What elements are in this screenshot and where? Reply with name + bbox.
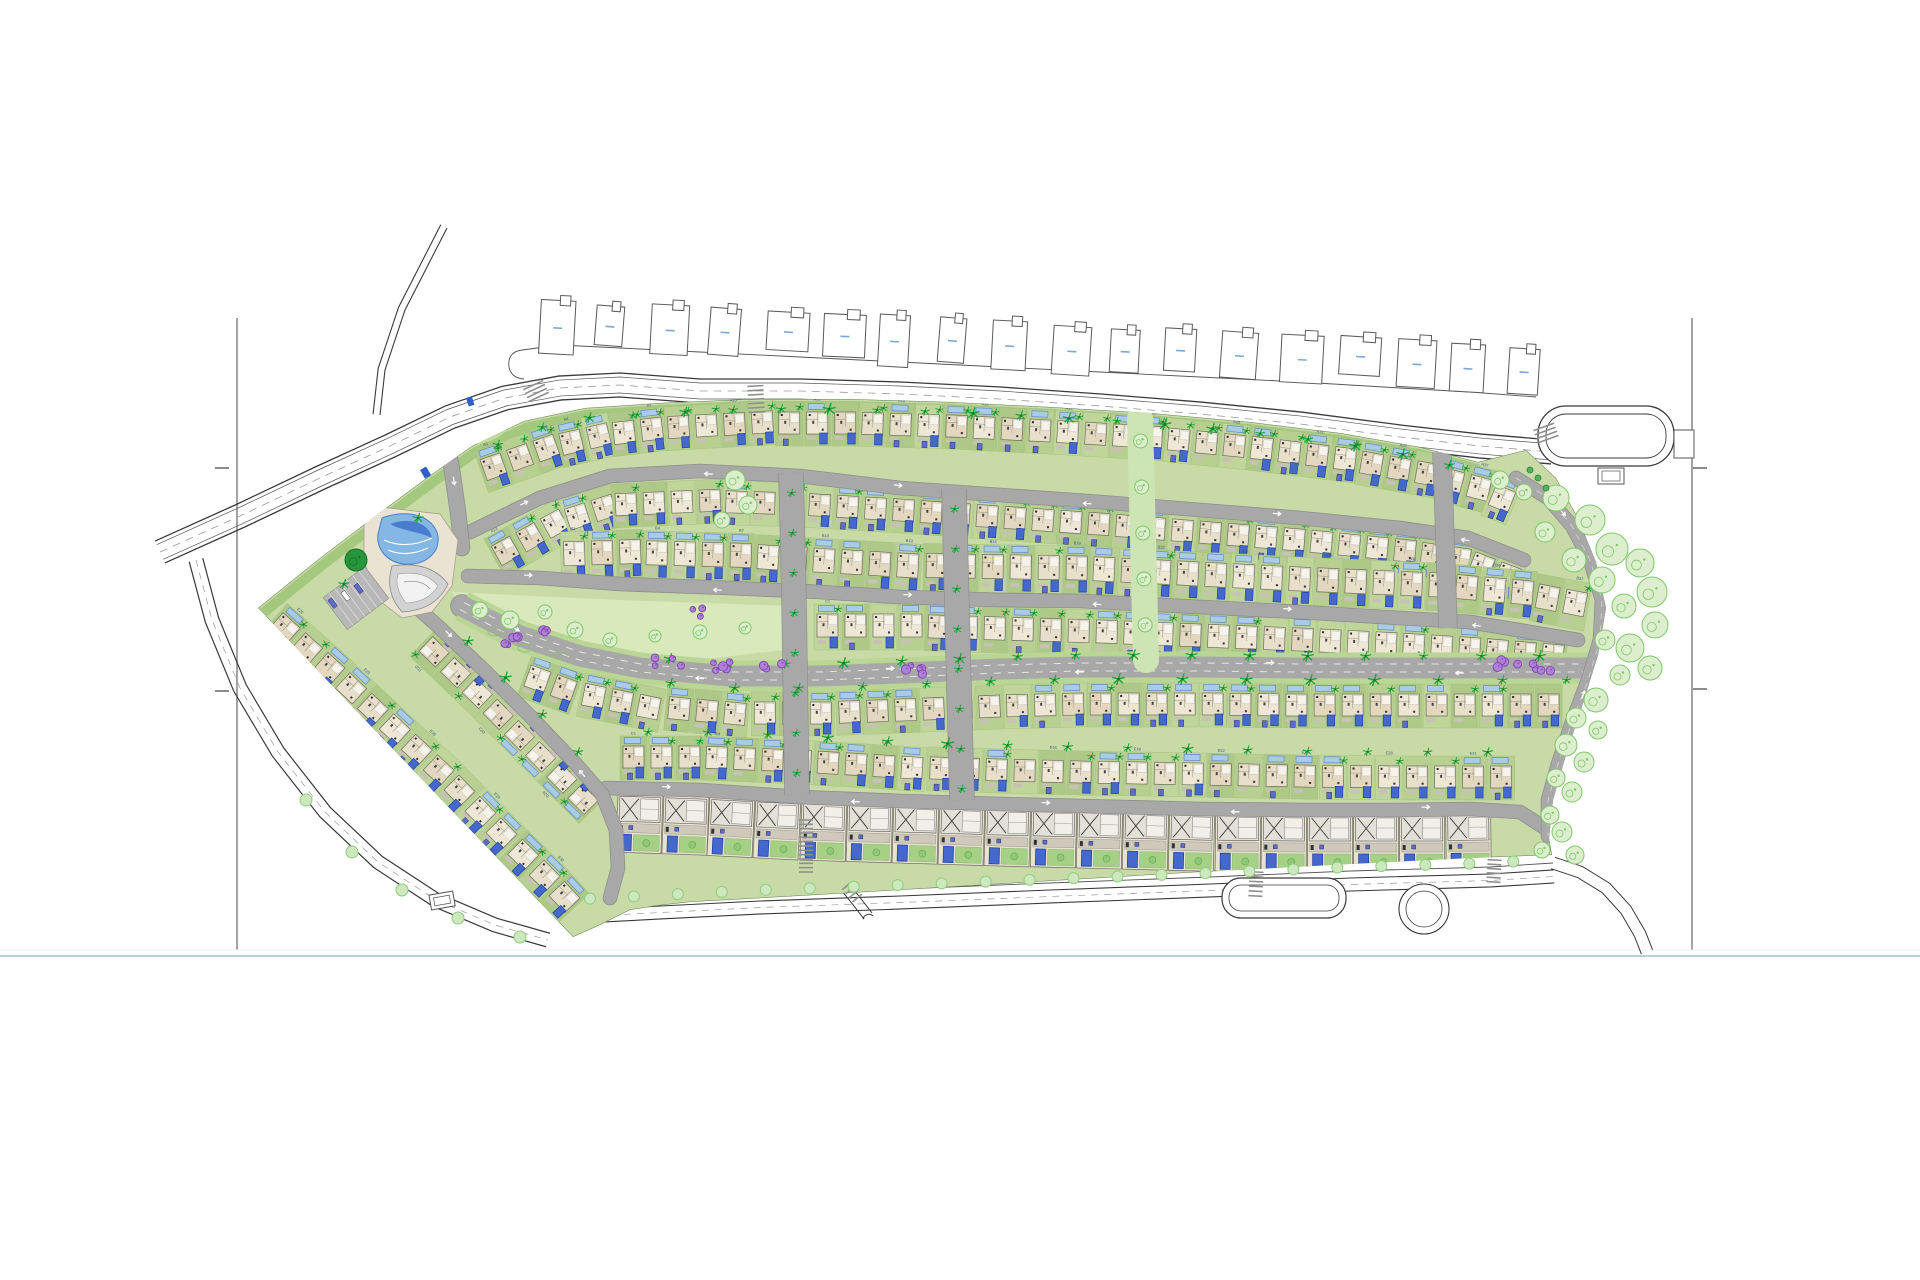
villa-plot <box>865 541 895 591</box>
villa-plot: B4 <box>643 525 673 579</box>
villa-plot: B16 <box>979 539 1008 593</box>
townhouse-plot <box>1308 814 1353 872</box>
villa-plot <box>671 531 701 580</box>
townhouse-plot: H6 <box>1354 809 1399 873</box>
villa-plot: D37 <box>1535 679 1562 729</box>
villa-plot: A13 <box>804 397 831 447</box>
villa-plot <box>1025 409 1054 454</box>
svg-text:A10: A10 <box>729 397 737 402</box>
villa-plot <box>997 407 1026 452</box>
neighbor-house <box>766 306 810 352</box>
villa-plot <box>730 737 759 782</box>
villa-plot <box>1067 751 1096 796</box>
villa-plot <box>676 736 704 780</box>
villa-plot <box>1395 684 1422 728</box>
villa-plot: E22 <box>1207 748 1235 798</box>
villa-plot <box>835 690 865 735</box>
villa-plot <box>1255 684 1282 728</box>
villa-plot <box>692 404 723 449</box>
neighbor-house <box>1219 326 1259 380</box>
townhouse-plot <box>846 803 893 862</box>
villa-plot <box>1311 684 1339 728</box>
villa-plot <box>1319 755 1348 799</box>
villa-plot <box>807 692 835 736</box>
svg-text:A16: A16 <box>898 398 906 403</box>
villa-plot <box>841 743 871 789</box>
villa-plot: B7 <box>727 527 755 581</box>
neighbor-house <box>991 315 1028 371</box>
villa-plot <box>1347 755 1374 799</box>
townhouse-plot: H2 <box>1168 807 1215 872</box>
svg-text:B28: B28 <box>1325 553 1333 558</box>
villa-plot <box>648 736 676 780</box>
neighbor-house <box>650 299 690 356</box>
townhouse-plot <box>1030 809 1076 868</box>
villa-plot: C7 <box>981 601 1011 653</box>
villa-plot: B13 <box>893 537 924 592</box>
villa-plot <box>699 532 729 581</box>
villa-plot <box>1087 683 1115 727</box>
villa-plot <box>1089 547 1118 596</box>
villa-plot <box>1235 754 1263 799</box>
villa-plot: E16 <box>1039 744 1067 794</box>
neighbor-house <box>594 300 625 347</box>
villa-plot <box>870 604 897 650</box>
villa-plot: B10 <box>809 532 839 587</box>
svg-text:B13: B13 <box>906 538 914 543</box>
townhouse-plot <box>753 800 801 860</box>
villa-plot <box>1507 684 1534 728</box>
villa-plot <box>832 402 859 446</box>
townhouse-plot <box>1215 813 1261 871</box>
neighbor-house <box>1396 334 1437 389</box>
villa-plot <box>1479 684 1507 728</box>
villa-plot: E1 <box>620 731 647 781</box>
villa-plot: B25 <box>1229 548 1259 603</box>
neighbor-house <box>1507 343 1540 395</box>
villa-plot <box>1179 753 1207 797</box>
villa-plot: B34 <box>1479 561 1511 617</box>
villa-plot <box>1035 545 1064 593</box>
villa-plot <box>1093 610 1123 657</box>
villa-plot: E4 <box>702 731 732 782</box>
villa-plot <box>919 687 948 732</box>
villa-plot: E31 <box>1460 751 1487 801</box>
villa-plot <box>1173 551 1202 600</box>
villa-plot: D28 <box>1283 678 1310 728</box>
neighbor-house <box>823 308 867 357</box>
villa-plot: D25 <box>1199 678 1227 728</box>
villa-plot <box>1201 552 1230 601</box>
villa-plot <box>1003 684 1031 729</box>
villa-plot <box>1488 756 1515 800</box>
svg-text:A28: A28 <box>1233 419 1241 425</box>
svg-text:B31: B31 <box>1409 556 1417 561</box>
villa-plot <box>1143 683 1171 727</box>
villa-plot <box>1007 545 1035 593</box>
neighbor-house <box>1163 323 1197 372</box>
svg-text:E19: E19 <box>1134 746 1142 751</box>
neighbor-house <box>1339 330 1383 376</box>
neighbor-house <box>937 312 967 363</box>
villa-plot: D7 <box>692 683 723 735</box>
villa-plot <box>1171 683 1198 727</box>
villa-plot: E28 <box>1375 750 1404 800</box>
svg-text:A22: A22 <box>1066 405 1074 410</box>
villa-plot <box>1011 749 1039 794</box>
svg-text:B22: B22 <box>1157 544 1165 549</box>
villa-plot: D31 <box>1367 679 1395 729</box>
neighbor-house <box>1109 324 1140 373</box>
site-layer: A1A4A7A10A13A16A19A22A25A28A31A34A37A13A… <box>258 397 1606 938</box>
svg-text:A13: A13 <box>814 397 822 402</box>
svg-text:B10: B10 <box>822 533 830 538</box>
villa-plot: A16 <box>886 398 914 448</box>
site-plan-page: A1A4A7A10A13A16A19A22A25A28A31A34A37A13A… <box>0 0 1920 1280</box>
villa-plot <box>664 405 695 450</box>
neighbor-house <box>539 294 577 355</box>
villa-plot: B31 <box>1397 556 1428 611</box>
villa-plot <box>719 691 751 737</box>
villa-plot <box>813 741 844 787</box>
villa-plot <box>1009 607 1039 654</box>
villa-plot <box>1151 752 1180 796</box>
villa-plot <box>1227 683 1256 727</box>
svg-text:E28: E28 <box>1386 750 1394 755</box>
villa-plot <box>753 535 784 585</box>
svg-text:E16: E16 <box>1050 745 1058 750</box>
villa-plot <box>1163 418 1195 465</box>
villa-plot <box>837 539 867 589</box>
villa-plot <box>833 485 864 531</box>
villa-plot: C1 <box>814 599 842 651</box>
neighbor-house <box>707 302 741 356</box>
neighbor-house <box>1051 320 1092 376</box>
villa-plot <box>1341 559 1370 608</box>
villa-plot: A22 <box>1053 405 1084 456</box>
villa-plot <box>1423 684 1450 728</box>
villa-plot <box>612 483 642 528</box>
neighbor-house <box>1279 329 1324 384</box>
villa-plot <box>982 749 1012 794</box>
svg-text:E31: E31 <box>1470 751 1478 756</box>
villa-plot <box>842 604 869 650</box>
villa-plot <box>616 529 646 578</box>
neighbor-house <box>1449 338 1486 393</box>
svg-text:B16: B16 <box>990 539 998 544</box>
villa-plot <box>1257 555 1286 604</box>
svg-text:E22: E22 <box>1218 748 1226 753</box>
villa-plot <box>1081 412 1112 458</box>
villa-plot: E19 <box>1123 746 1152 796</box>
villa-plot: B1 <box>560 526 590 580</box>
villa-plot <box>1369 560 1399 609</box>
villa-plot: C10 <box>1065 603 1095 655</box>
townhouse-plot: H4 <box>1261 808 1307 872</box>
townhouse-plot <box>662 796 709 856</box>
villa-plot <box>897 746 927 792</box>
villa-plot <box>1059 683 1087 728</box>
villa-plot <box>668 480 697 525</box>
villa-plot <box>751 692 779 736</box>
villa-plot: A19 <box>639 476 668 527</box>
villa-plot: D22 <box>1115 678 1142 728</box>
villa-plot: A10 <box>719 397 749 448</box>
villa-plot <box>1285 556 1314 605</box>
neighbor-houses <box>539 294 1541 395</box>
villa-plot <box>1037 608 1067 655</box>
villa-plot: D34 <box>1451 679 1479 729</box>
svg-text:E1: E1 <box>631 731 637 736</box>
villa-plot: C4 <box>898 599 925 651</box>
villa-plot <box>1339 684 1366 728</box>
villa-plot: E10 <box>869 739 899 790</box>
townhouse-plot <box>1122 811 1168 870</box>
svg-text:A19: A19 <box>982 401 990 406</box>
villa-plot <box>588 530 618 579</box>
villa-plot <box>664 686 695 732</box>
villa-plot <box>975 685 1004 730</box>
villa-plot <box>891 688 920 733</box>
villa-plot: B28 <box>1313 552 1342 607</box>
svg-text:B34: B34 <box>1493 562 1501 568</box>
villa-plot <box>1095 751 1124 795</box>
townhouse-plot: F3 <box>707 792 755 858</box>
villa-plot <box>1404 756 1431 800</box>
townhouse-plot <box>938 806 985 865</box>
villa-plot <box>1263 754 1291 799</box>
villa-plot: B19 <box>1063 540 1091 594</box>
site-plan-canvas: A1A4A7A10A13A16A19A22A25A28A31A34A37A13A… <box>0 0 1920 1280</box>
villa-plot: D19 <box>1031 678 1059 728</box>
villa-plot <box>1432 756 1460 800</box>
svg-text:B19: B19 <box>1074 540 1082 545</box>
neighbor-house <box>877 309 910 368</box>
villa-plot: D13 <box>863 684 893 735</box>
svg-text:B25: B25 <box>1241 549 1249 554</box>
villa-plot: E25 <box>1291 749 1319 799</box>
